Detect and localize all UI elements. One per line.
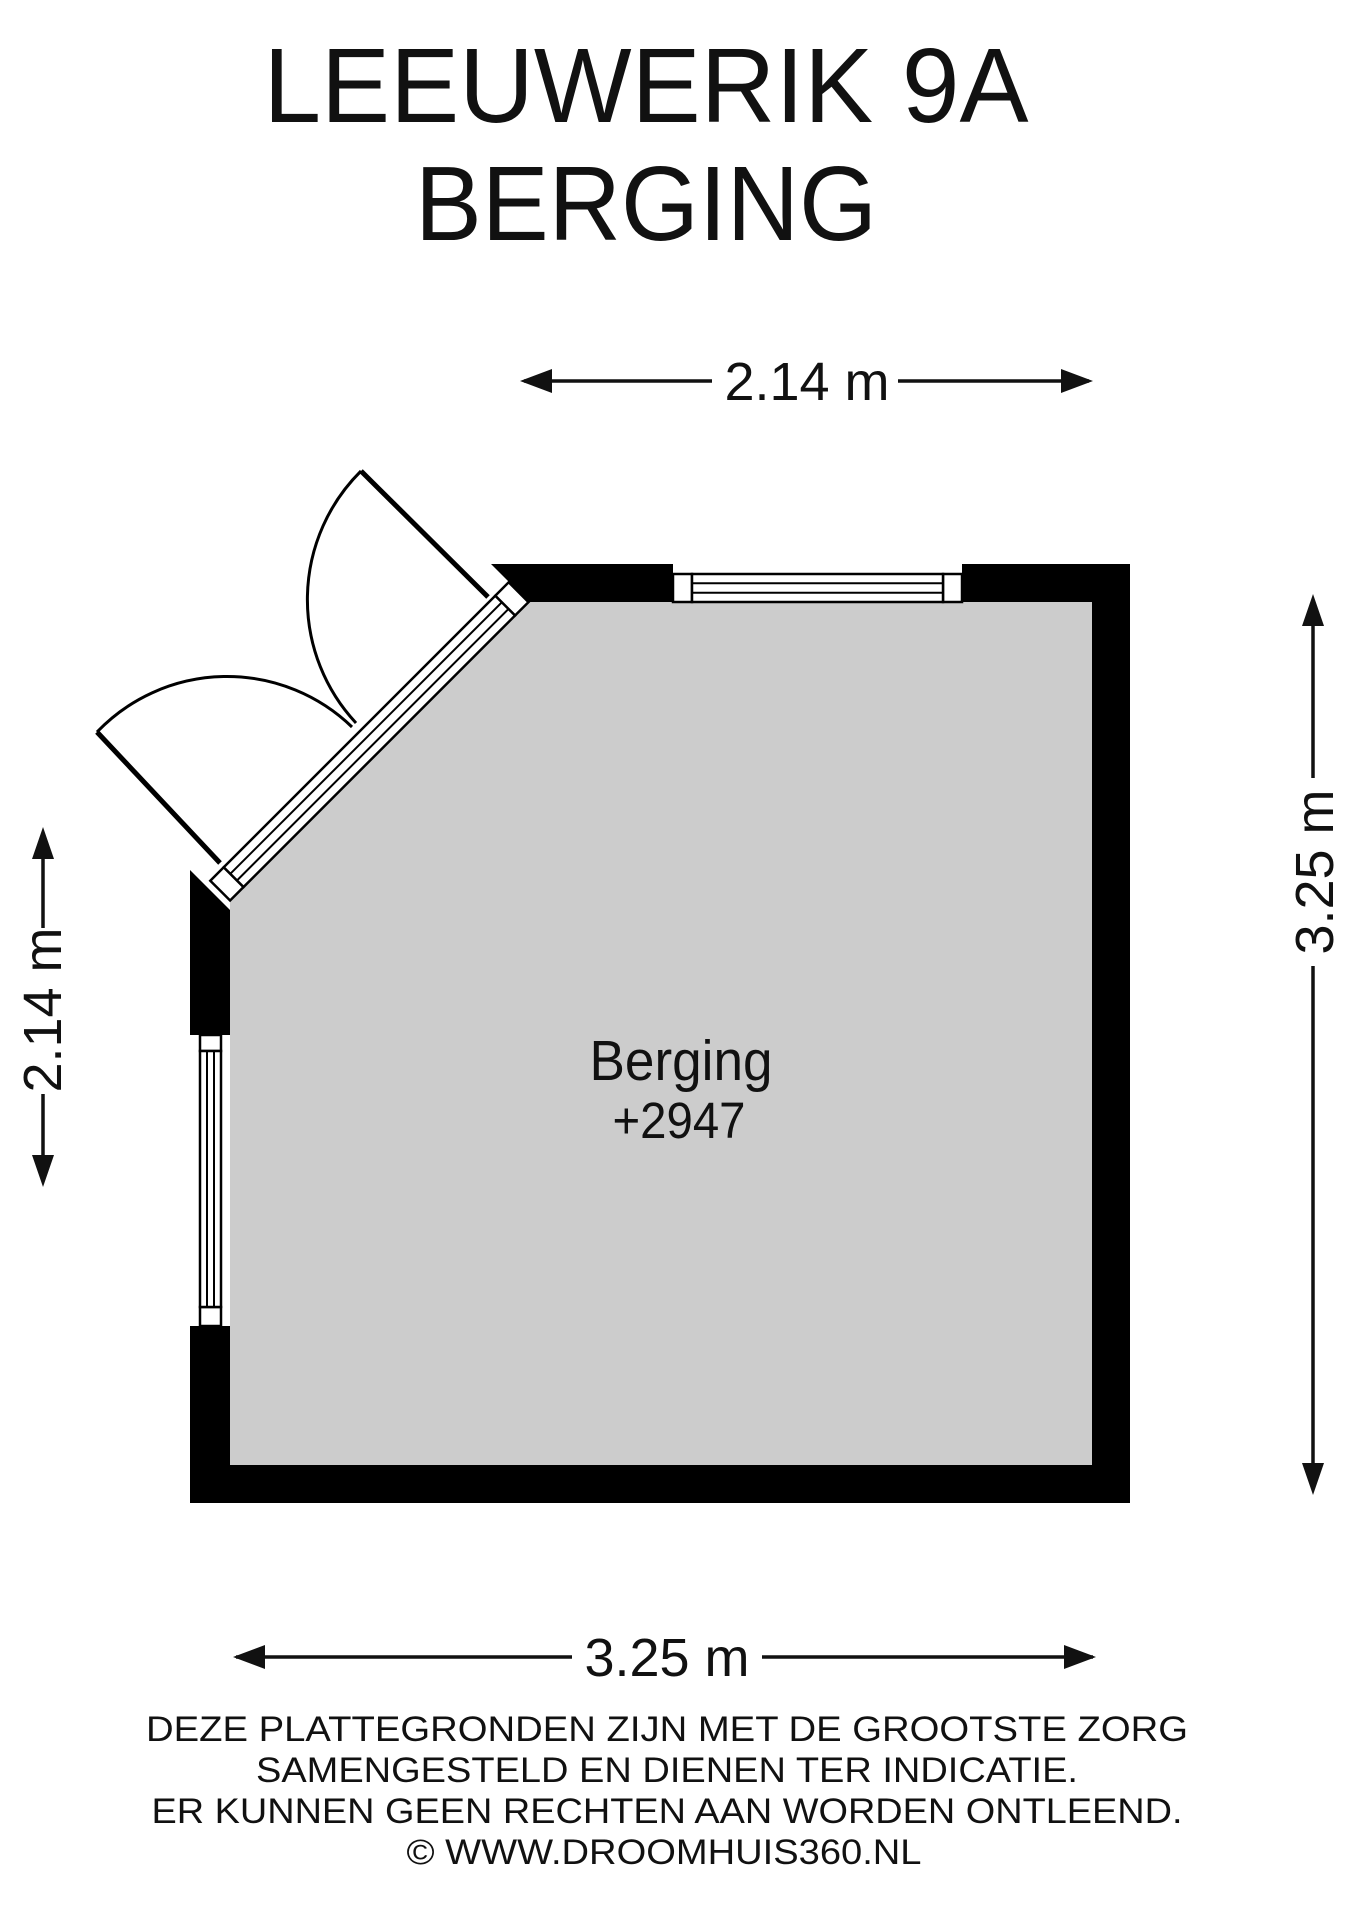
door-upper-leaf xyxy=(361,471,488,597)
window-top-jamb-right xyxy=(943,574,962,602)
dimension-bottom-label: 3.25 m xyxy=(584,1628,749,1688)
window-left-jamb-bottom xyxy=(200,1307,221,1326)
room-name-label: Berging xyxy=(590,1029,773,1093)
disclaimer-line1: DEZE PLATTEGRONDEN ZIJN MET DE GROOTSTE … xyxy=(146,1710,1188,1749)
dimension-right-label: 3.25 m xyxy=(1285,789,1345,954)
disclaimer: DEZE PLATTEGRONDEN ZIJN MET DE GROOTSTE … xyxy=(146,1710,1188,1872)
window-top-frame xyxy=(692,574,943,602)
disclaimer-line2: SAMENGESTELD EN DIENEN TER INDICATIE. xyxy=(256,1751,1078,1790)
arrow-up-icon xyxy=(1302,594,1324,626)
window-top xyxy=(673,574,962,602)
window-left-jamb-top xyxy=(200,1035,221,1051)
dimension-bottom: 3.25 m xyxy=(233,1628,1096,1688)
door-upper-swing-arc xyxy=(307,471,361,723)
window-left xyxy=(200,1035,221,1326)
arrow-down-icon xyxy=(1302,1463,1324,1495)
plan-title-line2: BERGING xyxy=(415,145,877,263)
dimension-right: 3.25 m xyxy=(1285,594,1345,1495)
arrow-right-icon xyxy=(1061,369,1093,393)
arrow-right-icon xyxy=(1064,1645,1096,1669)
arrow-left-icon xyxy=(520,369,552,393)
window-top-jamb-left xyxy=(673,574,692,602)
wall-bottom xyxy=(190,1465,1130,1503)
room-level-label: +2947 xyxy=(613,1092,746,1149)
floorplan-page: LEEUWERIK 9A BERGING Berging +2947 xyxy=(0,0,1358,1920)
door-lower-leaf xyxy=(97,732,220,863)
arrow-left-icon xyxy=(233,1645,265,1669)
dimension-top-label: 2.14 m xyxy=(724,352,889,412)
arrow-up-icon xyxy=(32,827,54,859)
plan-title-line1: LEEUWERIK 9A xyxy=(264,27,1029,145)
door-lower-swing-arc xyxy=(97,677,352,732)
disclaimer-line3: ER KUNNEN GEEN RECHTEN AAN WORDEN ONTLEE… xyxy=(152,1792,1183,1831)
arrow-down-icon xyxy=(32,1155,54,1187)
window-left-frame xyxy=(200,1051,221,1307)
floorplan-drawing: LEEUWERIK 9A BERGING Berging +2947 xyxy=(0,0,1358,1920)
wall-right xyxy=(1092,564,1130,1503)
copyright-line: © WWW.DROOMHUIS360.NL xyxy=(407,1833,922,1872)
dimension-left: 2.14 m xyxy=(13,827,73,1187)
wall-left-lower xyxy=(190,1326,230,1503)
dimension-left-label: 2.14 m xyxy=(13,927,73,1092)
dimension-top: 2.14 m xyxy=(520,352,1093,412)
